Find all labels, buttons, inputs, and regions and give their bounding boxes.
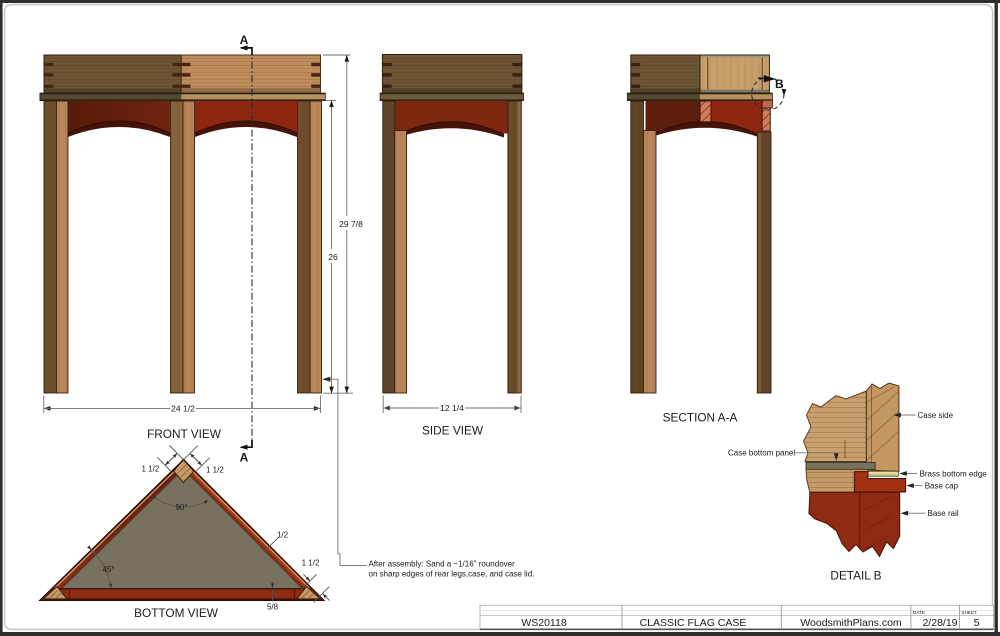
svg-text:SHEET: SHEET [962, 610, 978, 615]
svg-text:29 7/8: 29 7/8 [339, 219, 363, 229]
svg-text:1 1/2: 1 1/2 [206, 466, 224, 475]
svg-text:Base rail: Base rail [928, 509, 959, 518]
svg-text:DETAIL B: DETAIL B [830, 569, 881, 583]
svg-text:2/28/19: 2/28/19 [922, 617, 957, 629]
svg-text:45°: 45° [102, 565, 114, 574]
svg-text:After assembly: Sand a ~1/16": After assembly: Sand a ~1/16" roundover [369, 560, 516, 569]
svg-text:5/8: 5/8 [267, 603, 279, 612]
svg-text:A: A [240, 33, 249, 47]
svg-text:Base cap: Base cap [925, 482, 959, 491]
svg-text:CLASSIC FLAG CASE: CLASSIC FLAG CASE [640, 617, 747, 629]
svg-text:12 1/4: 12 1/4 [440, 403, 464, 413]
svg-text:B: B [775, 77, 784, 91]
svg-text:90°: 90° [175, 503, 187, 512]
svg-text:24 1/2: 24 1/2 [171, 403, 195, 413]
svg-text:26: 26 [328, 252, 338, 262]
svg-text:FRONT VIEW: FRONT VIEW [147, 427, 222, 441]
svg-text:5: 5 [974, 617, 980, 629]
svg-text:1 1/2: 1 1/2 [302, 559, 320, 568]
svg-text:on sharp edges of rear legs,ca: on sharp edges of rear legs,case, and ca… [369, 569, 535, 578]
svg-text:A: A [240, 451, 249, 465]
svg-text:Case side: Case side [918, 411, 954, 420]
svg-text:SECTION A-A: SECTION A-A [663, 411, 738, 425]
svg-text:WS20118: WS20118 [521, 617, 566, 629]
svg-text:Brass bottom edge: Brass bottom edge [920, 469, 988, 478]
svg-text:BOTTOM VIEW: BOTTOM VIEW [134, 606, 219, 620]
svg-text:1/2: 1/2 [277, 531, 289, 540]
svg-text:1 1/2: 1 1/2 [142, 465, 160, 474]
svg-text:SIDE VIEW: SIDE VIEW [422, 424, 484, 438]
svg-text:WoodsmithPlans.com: WoodsmithPlans.com [800, 617, 902, 629]
svg-text:DATE: DATE [913, 610, 925, 615]
svg-text:Case bottom panel: Case bottom panel [728, 449, 795, 458]
